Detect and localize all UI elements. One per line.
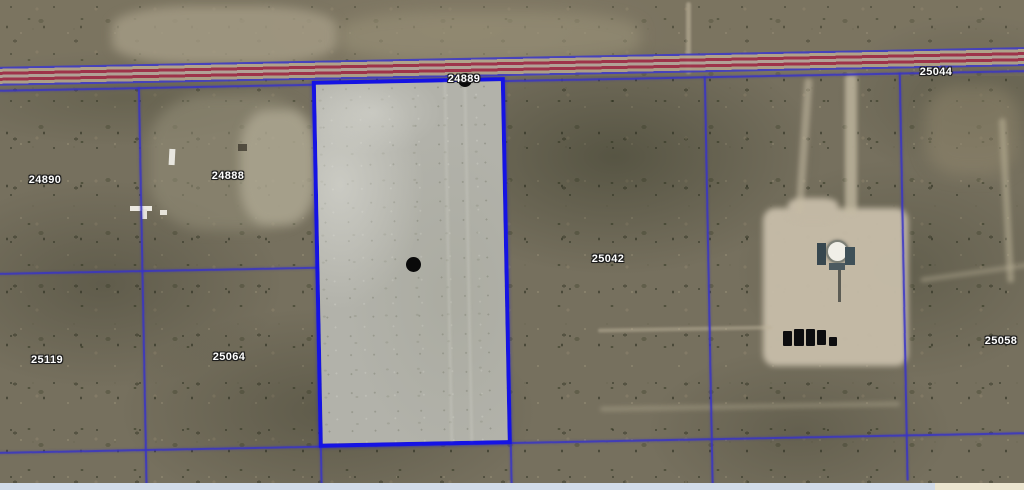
bottom-edge-strip xyxy=(0,483,1024,490)
parcel-label-25119: 25119 xyxy=(31,354,63,366)
bottom-edge-strip-right xyxy=(935,483,1024,490)
parcel-label-25042: 25042 xyxy=(592,253,625,265)
parcel-line-horizontal-bottom xyxy=(0,432,1024,454)
parcel-marker-dot xyxy=(406,257,421,272)
parcel-track-streak-1 xyxy=(444,82,453,441)
parcel-label-24889: 24889 xyxy=(448,73,481,85)
map-viewport[interactable]: 24889 24890 24888 25044 25042 25058 2511… xyxy=(0,0,1024,490)
parcel-label-25064: 25064 xyxy=(213,351,246,363)
parcel-label-24890: 24890 xyxy=(29,174,62,186)
parcel-label-25058: 25058 xyxy=(985,335,1018,347)
parcel-track-streak-2 xyxy=(464,82,473,441)
parcel-line-vertical-2 xyxy=(704,76,714,486)
parcel-boundary-layer xyxy=(0,0,1024,490)
parcel-line-horizontal-left xyxy=(0,267,318,275)
parcel-label-25044: 25044 xyxy=(920,66,953,78)
parcel-line-vertical-1 xyxy=(138,87,148,490)
parcel-line-vertical-3 xyxy=(899,73,909,481)
parcel-label-24888: 24888 xyxy=(212,170,245,182)
